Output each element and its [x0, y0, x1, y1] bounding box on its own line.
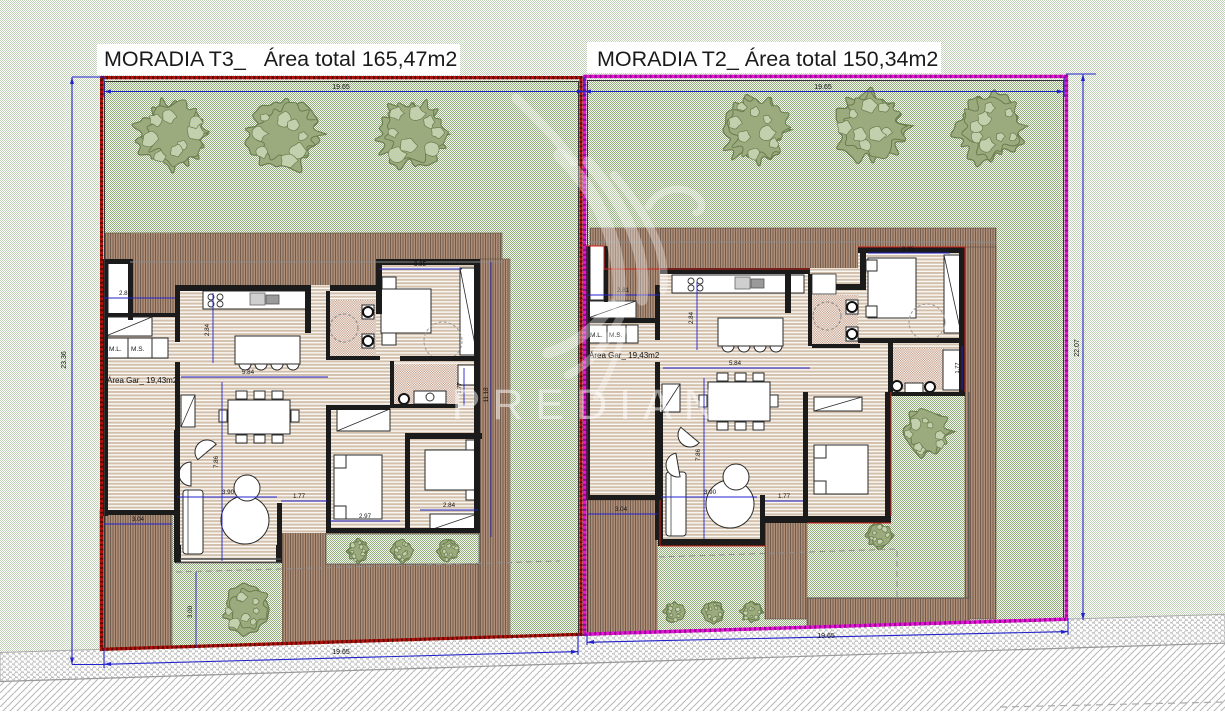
svg-text:M.L.: M.L.: [109, 346, 122, 353]
svg-text:3.00: 3.00: [187, 605, 194, 618]
svg-text:M.S.: M.S.: [131, 346, 145, 353]
svg-text:2.97: 2.97: [359, 513, 372, 520]
svg-text:2.81: 2.81: [119, 290, 132, 297]
svg-text:1.77: 1.77: [293, 493, 306, 500]
svg-text:23.36: 23.36: [61, 351, 68, 369]
svg-text:7.86: 7.86: [213, 455, 220, 468]
svg-text:PREDIANO: PREDIANO: [452, 381, 773, 429]
svg-text:3.90: 3.90: [704, 489, 717, 496]
svg-text:1.77: 1.77: [778, 493, 791, 500]
svg-text:3.90: 3.90: [222, 489, 235, 496]
svg-text:2.84: 2.84: [688, 311, 695, 324]
svg-text:MORADIA T3_ Área total 165,4: MORADIA T3_ Área total 165,47m2: [104, 46, 457, 71]
svg-text:Área Gar_ 19,43m2: Área Gar_ 19,43m2: [107, 376, 178, 385]
svg-text:22.07: 22.07: [1074, 339, 1081, 357]
svg-text:3.04: 3.04: [615, 506, 628, 513]
svg-text:5.84: 5.84: [242, 369, 255, 376]
svg-text:7.86: 7.86: [695, 448, 702, 461]
svg-text:19.65: 19.65: [332, 649, 350, 656]
svg-text:1.77: 1.77: [955, 362, 961, 373]
svg-text:3.35: 3.35: [902, 246, 915, 253]
svg-text:3.35: 3.35: [414, 261, 427, 268]
svg-text:2.84: 2.84: [443, 502, 456, 509]
svg-text:19.65: 19.65: [332, 84, 350, 91]
svg-text:2.84: 2.84: [204, 323, 211, 336]
svg-text:5.84: 5.84: [729, 360, 742, 367]
svg-text:MORADIA T2_ Área total 150,34m: MORADIA T2_ Área total 150,34m2: [597, 46, 938, 71]
svg-text:19.65: 19.65: [814, 84, 832, 91]
svg-text:3.04: 3.04: [132, 516, 145, 523]
svg-text:19.65: 19.65: [817, 633, 835, 640]
